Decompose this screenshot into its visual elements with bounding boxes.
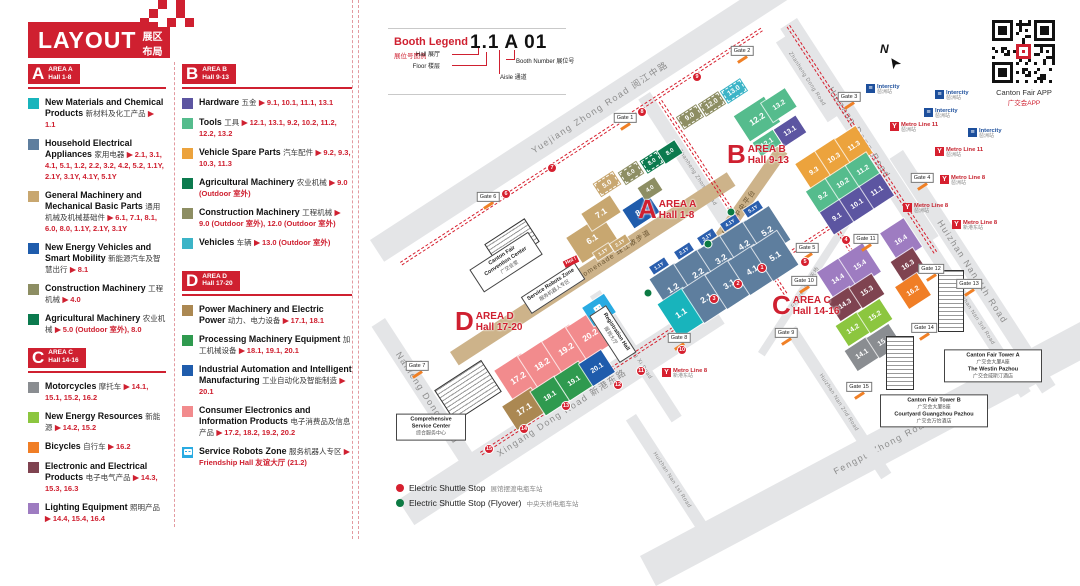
category-color-swatch xyxy=(182,208,193,219)
category-color-swatch xyxy=(28,382,39,393)
canton-fair-tower-a-label: Canton Fair Tower A广交会大厦A座The Westin Paz… xyxy=(944,349,1042,382)
shuttle-stop-1: 1 xyxy=(757,263,767,273)
category-color-swatch xyxy=(182,118,193,129)
metro-station: YMetro Line 11琶洲站 xyxy=(935,147,983,159)
intercity-station-zh: 琶洲站 xyxy=(946,96,969,102)
category-name-zh: 新材料及化工产品 xyxy=(86,109,146,118)
category-name: Bicycles xyxy=(45,441,81,451)
shuttle-stop-12: 12 xyxy=(613,380,623,390)
legend-sidebar: LAYOUT 展区布局 AAREA AHall 1-8New Materials… xyxy=(0,0,360,539)
checker-decoration xyxy=(140,0,194,32)
road-huizhan-nan-1st: Huizhan Nan 1st Road xyxy=(626,414,718,546)
legend-item: Hardware 五金 ▶ 9.1, 10.1, 11.1, 13.1 xyxy=(182,97,352,109)
category-color-swatch xyxy=(28,412,39,423)
category-name: Construction Machinery xyxy=(199,207,300,217)
category-name-zh: 汽车配件 xyxy=(283,148,313,157)
gate-marker xyxy=(781,337,792,346)
booth-legend-title: Booth Legend xyxy=(394,36,468,48)
shuttle-stop-14: 14 xyxy=(519,424,529,434)
shuttle-label: Electric Shuttle Stop (Flyover) xyxy=(409,498,521,508)
booth-number-sample: 1.1A01 xyxy=(470,32,547,54)
gate-3-label: Gate 3 xyxy=(838,92,861,102)
area-c-header: CAREA CHall 14-16 xyxy=(28,348,166,373)
metro-station-zh: 琶洲站 xyxy=(914,209,948,215)
category-color-swatch xyxy=(28,243,39,254)
category-name: Vehicles xyxy=(199,237,234,247)
category-color-swatch xyxy=(182,335,193,346)
category-name: New Energy Resources xyxy=(45,411,143,421)
metro-station-zh: 新港东站 xyxy=(673,374,707,380)
area-badge: CAREA CHall 14-16 xyxy=(28,348,86,368)
qr-caption-zh: 广交会APP xyxy=(978,97,1070,107)
shuttle-stop-15: 15 xyxy=(484,444,494,454)
area-halls: Hall 1-8 xyxy=(48,74,72,82)
area-halls: Hall 17-20 xyxy=(202,280,232,288)
shuttle-stop-11: 11 xyxy=(636,366,646,376)
metro-station-zh: 琶洲站 xyxy=(946,153,983,159)
legend-item: Construction Machinery 工程机械 ▶ 4.0 xyxy=(28,283,166,305)
legend-item: Bicycles 自行车 ▶ 16.2 xyxy=(28,441,166,453)
category-name-zh: 摩托车 xyxy=(99,382,122,391)
shuttle-stop-3: 3 xyxy=(709,294,719,304)
area-halls: Hall 17-20 xyxy=(476,322,523,333)
area-halls: Hall 1-8 xyxy=(659,210,697,221)
category-hall-refs: ▶ 17.2, 18.2, 19.2, 20.2 xyxy=(216,428,295,437)
category-name-zh: 五金 xyxy=(242,98,257,107)
qr-caption: Canton Fair APP 广交会APP xyxy=(978,88,1070,107)
gate-marker xyxy=(620,122,631,131)
divider xyxy=(388,28,566,29)
intercity-icon: ≡ xyxy=(924,108,933,117)
legend-column-1: AAREA AHall 1-8New Materials and Chemica… xyxy=(28,64,166,532)
metro-station: YMetro Line 11琶洲站 xyxy=(890,122,938,134)
column-divider xyxy=(174,62,175,527)
gate-6-label: Gate 6 xyxy=(477,192,500,202)
area-letter: A xyxy=(638,198,657,221)
intercity-icon: ≡ xyxy=(968,128,977,137)
metro-icon: Y xyxy=(935,147,944,156)
poi-label-line: The Westin Pazhou xyxy=(948,366,1038,373)
flyover-shuttle-stop xyxy=(644,289,653,298)
shuttle-stop-5: 5 xyxy=(800,257,810,267)
area-name: AREA C xyxy=(48,349,78,357)
poi-label-line: Courtyard Guangzhou Pazhou xyxy=(884,411,984,418)
category-name-zh: 服务机器人专区 xyxy=(289,447,342,456)
gate-1-label: Gate 1 xyxy=(614,113,637,123)
intercity-station-zh: 琶洲站 xyxy=(877,90,900,96)
canton-fair-layout-page: Yuejiang Zhong Road 阅江中路Huizhan Dong Roa… xyxy=(0,0,1080,539)
legend-item: Tools 工具 ▶ 12.1, 13.1, 9.2, 10.2, 11.2, … xyxy=(182,117,352,139)
shuttle-stop-8: 8 xyxy=(637,107,647,117)
category-hall-refs: ▶ 14.2, 15.2 xyxy=(55,423,96,432)
poi-label-line: 广交会威斯汀酒店 xyxy=(948,373,1038,380)
shuttle-stop-10: 10 xyxy=(677,345,687,355)
area-badge: AAREA AHall 1-8 xyxy=(28,64,80,84)
area-name: AREA B xyxy=(748,144,789,155)
hall-5-0: 5.0 xyxy=(593,171,622,197)
category-name-zh: 车辆 xyxy=(237,238,252,247)
legend-item: Vehicles 车辆 ▶ 13.0 (Outdoor 室外) xyxy=(182,237,352,249)
intercity-station: ≡Intercity琶洲站 xyxy=(968,128,1002,140)
sidebar-map-divider xyxy=(358,0,359,539)
category-color-swatch xyxy=(28,462,39,473)
intercity-station: ≡Intercity琶洲站 xyxy=(866,84,900,96)
category-name: Agricultural Machinery xyxy=(45,313,140,323)
category-hall-refs: ▶ 17.1, 18.1 xyxy=(283,316,324,325)
leader-line xyxy=(478,48,479,55)
category-name: Processing Machinery Equipment xyxy=(199,334,340,344)
category-name-zh: 家用电器 xyxy=(94,150,124,159)
metro-station-zh: 琶洲站 xyxy=(901,128,938,134)
category-hall-refs: ▶ 18.1, 19.1, 20.1 xyxy=(239,346,299,355)
metro-station: YMetro Line 8琶洲站 xyxy=(940,175,985,187)
sample-booth: 01 xyxy=(524,32,547,54)
poi-label-line: 广交会万怡酒店 xyxy=(884,418,984,425)
area-d-map-label: DAREA DHall 17-20 xyxy=(455,310,522,333)
area-letter: B xyxy=(727,143,746,166)
metro-station: YMetro Line 8琶洲站 xyxy=(903,203,948,215)
area-name: AREA C xyxy=(793,295,840,306)
green-shuttle-dot-icon xyxy=(396,499,404,507)
shuttle-legend-row: Electric Shuttle Stop 展馆摆渡电瓶车站 xyxy=(396,483,578,493)
area-b-map-label: BAREA BHall 9-13 xyxy=(727,143,789,166)
leader-line xyxy=(486,52,487,66)
leader-line xyxy=(499,50,500,74)
hot-badge: Hot ! xyxy=(562,255,579,267)
gate-marker xyxy=(737,55,748,64)
gate-7-label: Gate 7 xyxy=(406,361,429,371)
intercity-icon: ≡ xyxy=(866,84,875,93)
category-name-zh: 工程机械 xyxy=(302,208,332,217)
area-halls: Hall 14-16 xyxy=(793,306,840,317)
category-name: Service Robots Zone xyxy=(199,446,287,456)
gate-14-label: Gate 14 xyxy=(911,323,937,333)
qr-code xyxy=(992,20,1055,88)
category-color-swatch xyxy=(28,98,39,109)
shuttle-label-zh: 展馆摆渡电瓶车站 xyxy=(491,483,543,493)
area-name: AREA B xyxy=(202,66,229,74)
gate-13-label: Gate 13 xyxy=(956,279,982,289)
category-name: Construction Machinery xyxy=(45,283,146,293)
legend-item: Industrial Automation and Intelligent Ma… xyxy=(182,364,352,397)
category-name-zh: 照明产品 xyxy=(130,503,160,512)
area-letter: A xyxy=(32,65,44,82)
metro-station: YMetro Line 8新港东站 xyxy=(952,220,997,232)
intercity-station-zh: 琶洲站 xyxy=(935,114,958,120)
category-color-swatch xyxy=(28,503,39,514)
legend-item: Household Electrical Appliances 家用电器 ▶ 2… xyxy=(28,138,166,182)
legend-item: New Energy Vehicles and Smart Mobility 新… xyxy=(28,242,166,275)
metro-station: YMetro Line 8新港东站 xyxy=(662,368,707,380)
legend-item: New Energy Resources 新能源 ▶ 14.2, 15.2 xyxy=(28,411,166,433)
floor-annotation: Floor 楼层 xyxy=(413,61,440,70)
shuttle-stop-2: 2 xyxy=(733,279,743,289)
canton-fair-tower-b-label: Canton Fair Tower B广交会大厦B座Courtyard Guan… xyxy=(880,394,988,427)
leader-line xyxy=(514,50,515,59)
divider xyxy=(388,94,566,95)
shuttle-stop-13: 13 xyxy=(561,401,571,411)
hall-6-0: 6.0 xyxy=(618,161,645,186)
metro-icon: Y xyxy=(952,220,961,229)
area-name: AREA D xyxy=(476,311,523,322)
intercity-station: ≡Intercity琶洲站 xyxy=(935,90,969,102)
gate-5-label: Gate 5 xyxy=(796,243,819,253)
qr-caption-en: Canton Fair APP xyxy=(978,88,1070,97)
legend-item: Consumer Electronics and Information Pro… xyxy=(182,405,352,438)
category-color-swatch xyxy=(182,238,193,249)
category-name: Hardware xyxy=(199,97,239,107)
area-halls: Hall 9-13 xyxy=(202,74,229,82)
gate-11-label: Gate 11 xyxy=(853,234,878,244)
intercity-icon: ≡ xyxy=(935,90,944,99)
category-hall-refs: ▶ 9.1, 10.1, 11.1, 13.1 xyxy=(259,98,333,107)
category-hall-refs: ▶ 16.2 xyxy=(108,442,130,451)
red-shuttle-dot-icon xyxy=(396,484,404,492)
area-d-header: DAREA DHall 17-20 xyxy=(182,271,352,296)
shuttle-stop-7: 7 xyxy=(547,163,557,173)
gate-marker xyxy=(964,288,975,297)
gate-2-label: Gate 2 xyxy=(731,46,754,56)
category-name: Tools xyxy=(199,117,222,127)
category-hall-refs: ▶ 14.4, 15.4, 16.4 xyxy=(45,514,105,523)
robot-icon xyxy=(184,449,192,455)
sidebar-map-divider xyxy=(352,0,353,539)
area-a-section: AAREA AHall 1-8New Materials and Chemica… xyxy=(28,64,166,335)
legend-item: Processing Machinery Equipment 加工机械设备 ▶ … xyxy=(182,334,352,356)
shuttle-label: Electric Shuttle Stop xyxy=(409,483,486,493)
category-name: Lighting Equipment xyxy=(45,502,128,512)
category-name: Motorcycles xyxy=(45,381,96,391)
category-color-swatch xyxy=(182,365,193,376)
gate-8-label: Gate 8 xyxy=(668,333,691,343)
gate-10-label: Gate 10 xyxy=(791,276,817,286)
shuttle-legend-row: Electric Shuttle Stop (Flyover) 中央天桥电瓶车站 xyxy=(396,498,578,508)
poi-label-line: Comprehensive xyxy=(400,417,462,424)
metro-icon: Y xyxy=(662,368,671,377)
tower-b-building xyxy=(886,336,914,390)
leader-line xyxy=(506,59,515,60)
booth-number-annotation: Booth Number 展位号 xyxy=(516,56,574,65)
category-name: Vehicle Spare Parts xyxy=(199,147,281,157)
aisle-annotation: Aisle 通道 xyxy=(500,72,527,81)
legend-item: Motorcycles 摩托车 ▶ 14.1, 15.1, 15.2, 16.2 xyxy=(28,381,166,403)
area-b-section: BAREA BHall 9-13Hardware 五金 ▶ 9.1, 10.1,… xyxy=(182,64,352,249)
flyover-shuttle-stop xyxy=(727,208,736,217)
layout-title: LAYOUT xyxy=(38,27,136,54)
gate-marker xyxy=(854,391,865,400)
comprehensive-service-center-label: ComprehensiveService Center综合服务中心 xyxy=(396,414,466,441)
area-c-section: CAREA CHall 14-16Motorcycles 摩托车 ▶ 14.1,… xyxy=(28,348,166,524)
legend-item: Power Machinery and Electric Power 动力、电力… xyxy=(182,304,352,326)
category-color-swatch xyxy=(182,148,193,159)
area-halls: Hall 9-13 xyxy=(748,155,789,166)
category-hall-refs: ▶ 5.0 (Outdoor 室外), 8.0 xyxy=(55,325,142,334)
hall-annotation: Hall 展厅 xyxy=(416,49,440,58)
legend-item: Construction Machinery 工程机械 ▶ 9.0 (Outdo… xyxy=(182,207,352,229)
gate-marker xyxy=(926,273,937,282)
service-robot-swatch-icon xyxy=(182,447,193,458)
sample-aisle: A xyxy=(504,32,519,54)
category-name-zh: 农业机械 xyxy=(297,178,327,187)
shuttle-label-zh: 中央天桥电瓶车站 xyxy=(526,498,578,508)
booth-legend: Booth Legend 展位号图例 1.1A01 Hall 展厅 Floor … xyxy=(388,28,568,96)
legend-item: Service Robots Zone 服务机器人专区 ▶ Friendship… xyxy=(182,446,352,468)
shuttle-stop-6: 6 xyxy=(501,189,511,199)
area-b-header: BAREA BHall 9-13 xyxy=(182,64,352,89)
category-hall-refs: ▶ 8.1 xyxy=(70,265,88,274)
compass-north-label: N xyxy=(880,42,889,56)
legend-item: Electronic and Electrical Products 电子电气产… xyxy=(28,461,166,494)
area-letter: D xyxy=(455,310,474,333)
flyover-shuttle-stop xyxy=(704,240,713,249)
area-letter: B xyxy=(186,65,198,82)
area-letter: D xyxy=(186,272,198,289)
category-color-swatch xyxy=(182,406,193,417)
area-c-map-label: CAREA CHall 14-16 xyxy=(772,294,839,317)
area-a-map-label: AAREA AHall 1-8 xyxy=(638,198,696,221)
gate-marker xyxy=(919,332,930,341)
area-a-header: AAREA AHall 1-8 xyxy=(28,64,166,89)
metro-station-zh: 琶洲站 xyxy=(951,181,985,187)
metro-station-zh: 新港东站 xyxy=(963,226,997,232)
category-color-swatch xyxy=(182,305,193,316)
category-color-swatch xyxy=(28,442,39,453)
legend-column-2: BAREA BHall 9-13Hardware 五金 ▶ 9.1, 10.1,… xyxy=(182,64,352,476)
area-badge: BAREA BHall 9-13 xyxy=(182,64,236,84)
gate-15-label: Gate 15 xyxy=(846,382,872,392)
category-name-zh: 动力、电力设备 xyxy=(228,316,281,325)
legend-item: Lighting Equipment 照明产品 ▶ 14.4, 15.4, 16… xyxy=(28,502,166,524)
shuttle-legend: Electric Shuttle Stop 展馆摆渡电瓶车站 Electric … xyxy=(396,483,578,513)
area-letter: C xyxy=(772,294,791,317)
category-name: Agricultural Machinery xyxy=(199,177,294,187)
sample-hall: 1.1 xyxy=(470,32,499,54)
category-color-swatch xyxy=(28,314,39,325)
area-letter: C xyxy=(32,349,44,366)
category-color-swatch xyxy=(182,178,193,189)
area-name: AREA D xyxy=(202,273,232,281)
category-hall-refs: ▶ 13.0 (Outdoor 室外) xyxy=(254,238,330,247)
intercity-station-zh: 琶洲站 xyxy=(979,134,1002,140)
leader-line xyxy=(452,54,478,55)
legend-item: General Machinery and Mechanical Basic P… xyxy=(28,190,166,234)
category-name-zh: 工具 xyxy=(224,118,239,127)
gate-9-label: Gate 9 xyxy=(775,328,798,338)
category-name-zh: 工业自动化及智能制造 xyxy=(262,376,337,385)
shuttle-stop-4: 4 xyxy=(841,235,851,245)
area-badge: DAREA DHall 17-20 xyxy=(182,271,240,291)
intercity-station: ≡Intercity琶洲站 xyxy=(924,108,958,120)
poi-label-line: 综合服务中心 xyxy=(400,431,462,438)
metro-icon: Y xyxy=(940,175,949,184)
category-color-swatch xyxy=(28,284,39,295)
area-name: AREA A xyxy=(659,199,697,210)
category-color-swatch xyxy=(182,98,193,109)
metro-icon: Y xyxy=(890,122,899,131)
legend-item: Agricultural Machinery 农业机械 ▶ 9.0 (Outdo… xyxy=(182,177,352,199)
metro-icon: Y xyxy=(903,203,912,212)
layout-title-zh: 展区布局 xyxy=(142,28,170,58)
legend-item: New Materials and Chemical Products 新材料及… xyxy=(28,97,166,130)
gate-4-label: Gate 4 xyxy=(911,173,934,183)
category-name-zh: 电子电气产品 xyxy=(86,473,131,482)
legend-item: Vehicle Spare Parts 汽车配件 ▶ 9.2, 9.3, 10.… xyxy=(182,147,352,169)
category-hall-refs: ▶ 4.0 xyxy=(62,295,80,304)
category-name-zh: 自行车 xyxy=(83,442,106,451)
legend-item: Agricultural Machinery 农业机械 ▶ 5.0 (Outdo… xyxy=(28,313,166,335)
road-label: Huizhan Nan 1st Road xyxy=(652,451,693,509)
category-color-swatch xyxy=(28,191,39,202)
area-d-section: DAREA DHall 17-20Power Machinery and Ele… xyxy=(182,271,352,468)
category-color-swatch xyxy=(28,139,39,150)
shuttle-stop-9: 9 xyxy=(692,72,702,82)
gate-12-label: Gate 12 xyxy=(918,264,944,274)
area-name: AREA A xyxy=(48,66,72,74)
area-halls: Hall 14-16 xyxy=(48,357,78,365)
leader-line xyxy=(452,65,486,66)
category-name: General Machinery and Mechanical Basic P… xyxy=(45,190,143,211)
